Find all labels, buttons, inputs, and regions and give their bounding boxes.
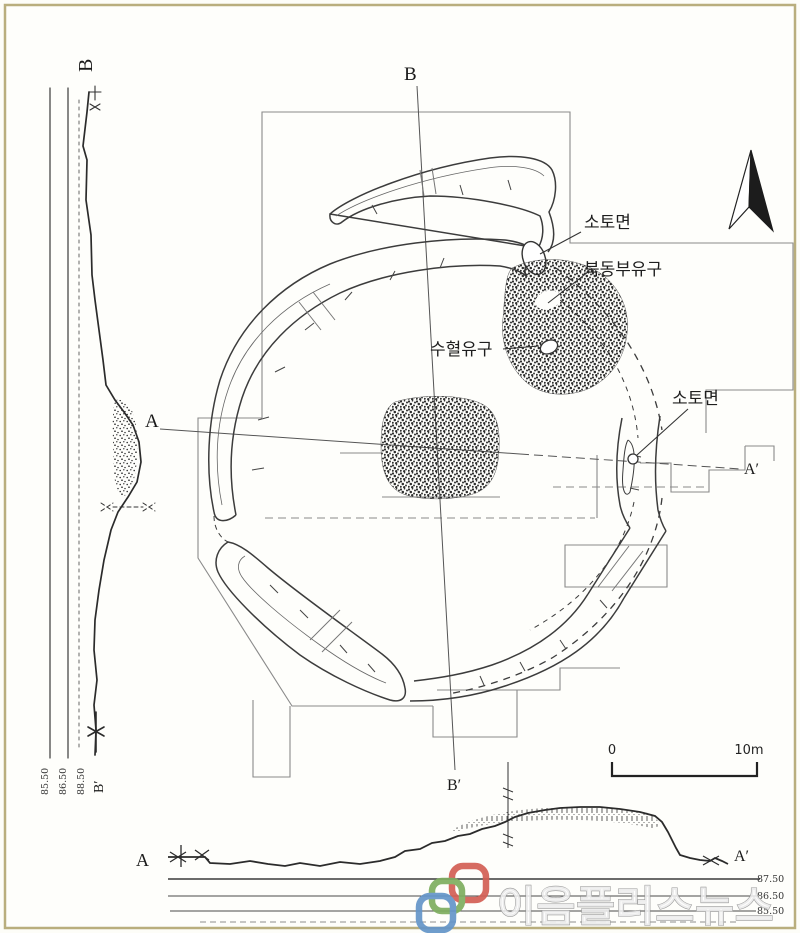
elevation-label: 85.50 <box>40 768 51 795</box>
scale-zero-label: 0 <box>608 743 616 758</box>
section-label-b-prime-bottom: B′ <box>92 781 107 793</box>
burnt-soil-circle <box>628 454 638 464</box>
plan-label-a: A <box>145 411 159 432</box>
plan-label-a-prime: A′ <box>744 461 759 478</box>
site-plan-figure: B 85.50 86.50 88.50 B′ <box>0 0 800 933</box>
central-mound-stipple <box>381 396 499 499</box>
plan-label-b: B <box>404 64 417 85</box>
scanned-figure-page: B 85.50 86.50 88.50 B′ <box>0 0 800 933</box>
annotation-label: 소토면 <box>672 389 719 408</box>
plan-label-b-prime: B′ <box>447 777 461 794</box>
annotation-label: 소토면 <box>584 213 631 232</box>
section-label-a-prime-right: A′ <box>734 848 749 865</box>
annotation-label: 북동부유구 <box>584 260 662 279</box>
elevation-label: 86.50 <box>58 768 69 795</box>
section-label-a-left: A <box>136 850 149 870</box>
annotation-label: 수혈유구 <box>430 340 493 359</box>
scale-ten-label: 10m <box>734 743 763 758</box>
section-label-b-top: B <box>75 59 97 72</box>
watermark-text: 이음플러스뉴스 <box>497 883 774 930</box>
elevation-label: 88.50 <box>76 768 87 795</box>
